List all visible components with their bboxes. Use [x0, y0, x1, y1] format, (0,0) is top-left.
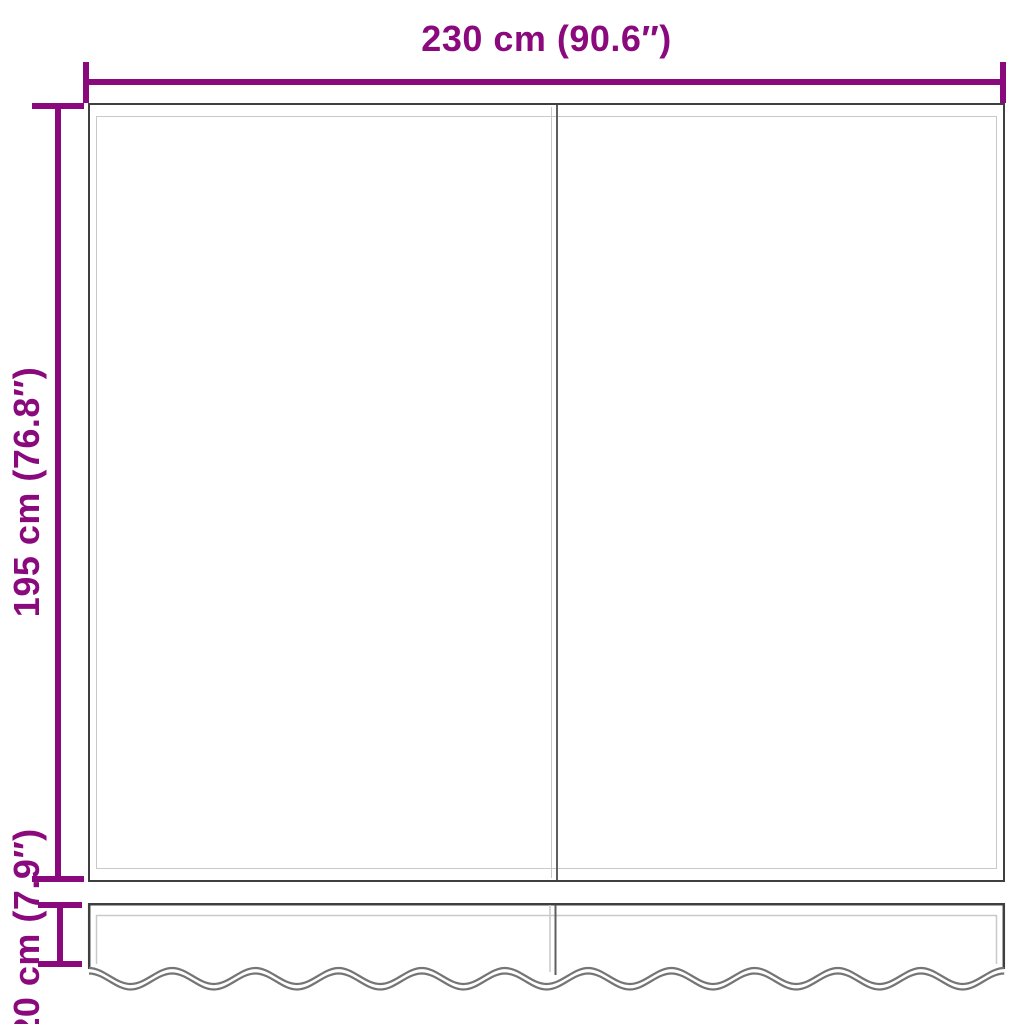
height-dimension-cap-top — [32, 103, 84, 109]
height-dimension-label: 195 cm (76.8″) — [6, 367, 48, 617]
awning-dimension-diagram: 230 cm (90.6″) 195 cm (76.8″) 20 cm (7.9… — [0, 0, 1024, 1024]
width-dimension-label: 230 cm (90.6″) — [88, 18, 1005, 60]
awning-fabric-panel — [88, 103, 1005, 882]
panel-hem-stitch — [96, 116, 997, 869]
width-dimension-tick-right — [1000, 62, 1006, 103]
valance-wave-line-1 — [89, 968, 1004, 984]
panel-seam-stitch — [551, 107, 552, 878]
width-dimension-line — [86, 79, 1004, 85]
panel-center-seam — [556, 105, 558, 880]
height-dimension-line — [55, 103, 61, 882]
valance-dimension-label: 20 cm (7.9″) — [6, 828, 48, 1024]
valance — [88, 902, 1005, 1002]
valance-dimension-line — [57, 904, 63, 966]
width-dimension-tick-left — [83, 62, 89, 103]
